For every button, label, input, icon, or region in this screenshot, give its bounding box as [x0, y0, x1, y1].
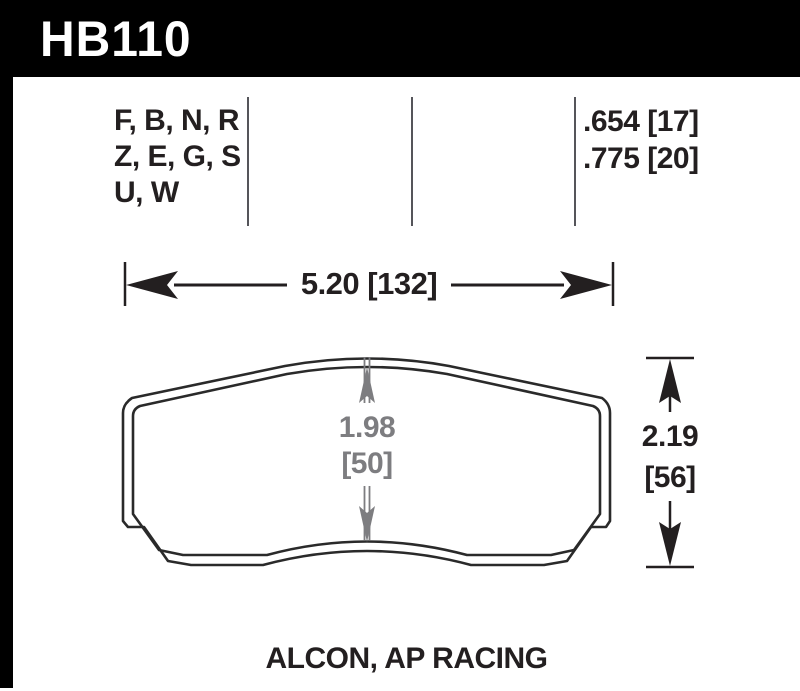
applications-label: ALCON, AP RACING — [13, 642, 800, 676]
pad-height-label: 1.98 [50] — [297, 410, 437, 482]
pad-height-up-arrowhead — [359, 367, 375, 403]
width-dim-right-arrowhead — [560, 271, 612, 299]
overall-height-label: 2.19 [56] — [600, 416, 740, 498]
pad-height-down-arrowhead — [359, 506, 375, 542]
overall-height-inches: 2.19 — [600, 416, 740, 457]
overall-width-label: 5.20 [132] — [283, 266, 455, 302]
width-dim-left-arrowhead — [126, 271, 178, 299]
pad-height-millimeters: [50] — [297, 446, 437, 482]
overall-height-millimeters: [56] — [600, 457, 740, 498]
pad-height-inches: 1.98 — [297, 410, 437, 446]
brake-pad-spec-page: HB110 F, B, N, R Z, E, G, S U, W .654 [1… — [0, 0, 800, 691]
technical-drawing — [0, 0, 800, 691]
